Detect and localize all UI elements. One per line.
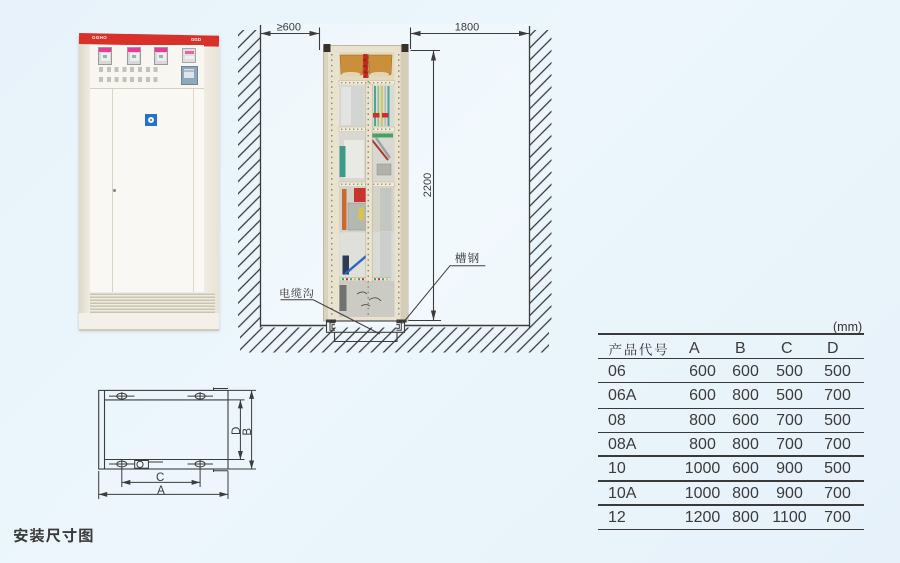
svg-text:B: B <box>242 428 254 436</box>
svg-text:A: A <box>157 485 165 497</box>
svg-text:≥600: ≥600 <box>277 21 301 33</box>
svg-text:C: C <box>156 472 164 484</box>
svg-text:1800: 1800 <box>455 21 479 33</box>
svg-text:2200: 2200 <box>422 173 434 197</box>
